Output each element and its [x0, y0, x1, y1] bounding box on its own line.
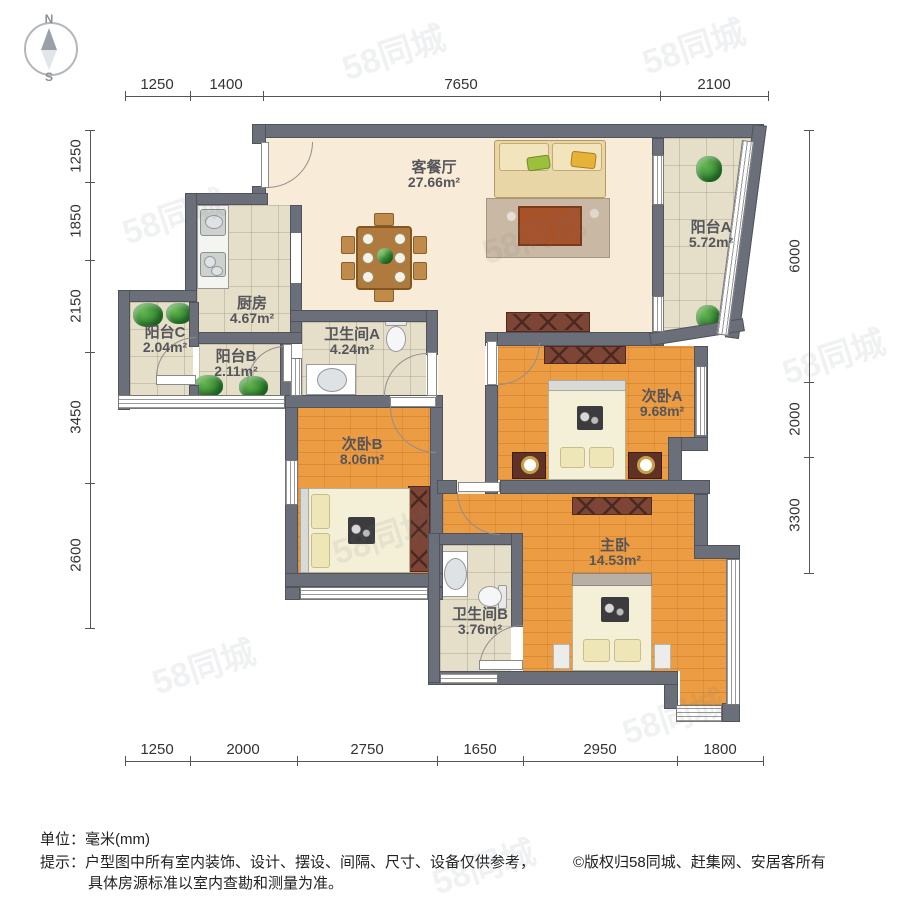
dim-line-left: [90, 130, 91, 628]
sofa-pillow-yellow: [570, 151, 597, 170]
dining-plate: [394, 252, 406, 264]
unit-note: 单位：毫米(mm): [40, 828, 150, 849]
watermark: 58同城: [635, 5, 751, 84]
bedroom-b-pillow: [311, 494, 330, 529]
master-quilt: [614, 639, 641, 662]
dim-bottom: 2000: [226, 741, 259, 758]
dim-left: 2150: [68, 289, 85, 322]
compass-south-label: S: [45, 70, 53, 84]
room-label-master: 主卧 14.53m²: [589, 538, 641, 568]
wall: [118, 290, 130, 410]
bedroom-a-door: [487, 341, 497, 385]
dim-tick: [85, 352, 95, 353]
bathroom-a-basin: [317, 368, 347, 392]
room-area: 8.06m²: [340, 452, 384, 467]
wall: [722, 703, 740, 722]
master-headboard: [572, 573, 652, 586]
bedroom-b-wardrobe: [408, 486, 430, 572]
master-bench: [654, 644, 671, 669]
dim-tick: [763, 756, 764, 766]
dim-line-right: [809, 130, 810, 573]
toilet-b-bowl: [478, 586, 502, 607]
wall: [437, 480, 457, 494]
entry-door: [261, 142, 269, 188]
dim-left: 2600: [68, 538, 85, 571]
room-name: 卫生间A: [324, 327, 380, 342]
dim-left: 1250: [68, 139, 85, 172]
dim-tick: [85, 483, 95, 484]
tip-note-line2: 具体房源标准以室内查勘和测量为准。: [88, 872, 343, 893]
dim-tick: [804, 457, 814, 458]
compass: N S: [16, 12, 82, 84]
wall: [511, 533, 523, 627]
wall: [694, 545, 740, 559]
wall: [185, 193, 268, 205]
dining-plate: [362, 271, 374, 283]
watermark: 58同城: [335, 11, 451, 90]
dim-tick: [768, 91, 769, 101]
copyright-note: ©版权归58同城、赶集网、安居客所有: [573, 851, 826, 872]
dim-top: 7650: [444, 76, 477, 93]
dining-chair: [374, 213, 394, 226]
coffee-table: [518, 206, 582, 246]
wall: [285, 573, 443, 587]
bedroom-b-window: [285, 460, 298, 505]
dim-left: 3450: [68, 400, 85, 433]
compass-needle-north-icon: [41, 28, 57, 50]
wall: [500, 480, 710, 494]
bathroom-b-door: [479, 660, 523, 670]
room-label-balcony-b: 阳台B 2.11m²: [214, 349, 258, 379]
room-area: 9.68m²: [640, 404, 684, 419]
compass-needle-south-icon: [41, 50, 57, 70]
wall: [285, 587, 300, 600]
toilet-a-bowl: [386, 326, 406, 352]
room-area: 2.04m²: [143, 340, 187, 355]
room-area: 3.76m²: [452, 622, 508, 637]
room-name: 客餐厅: [408, 160, 460, 175]
room-label-balcony-c: 阳台C 2.04m²: [143, 325, 187, 355]
room-name: 次卧B: [340, 437, 384, 452]
room-area: 4.67m²: [230, 311, 274, 326]
floorplan-page: N S: [0, 0, 900, 900]
dining-plate: [362, 252, 374, 264]
dim-bottom: 1650: [463, 741, 496, 758]
bedroom-b-blanket-pattern: [348, 517, 375, 544]
master-wardrobe: [572, 497, 652, 515]
dim-top: 1250: [140, 76, 173, 93]
wall: [252, 124, 266, 144]
bathroom-b-basin: [444, 558, 467, 590]
dim-left: 1850: [68, 204, 85, 237]
master-door: [458, 482, 500, 492]
room-name: 次卧A: [640, 389, 684, 404]
dim-bottom: 1800: [703, 741, 736, 758]
dim-bottom: 1250: [140, 741, 173, 758]
master-blanket-pattern: [601, 597, 629, 622]
room-name: 主卧: [589, 538, 641, 553]
dim-right: 3300: [787, 498, 804, 531]
bedroom-b-south-window: [300, 587, 428, 600]
master-south-window: [676, 705, 722, 722]
kitchen-balcony-door: [283, 344, 292, 382]
room-label-bathroom-b: 卫生间B 3.76m²: [452, 607, 508, 637]
balcony-a-window: [652, 296, 664, 332]
balcony-a-plant: [696, 156, 722, 182]
room-area: 27.66m²: [408, 175, 460, 190]
room-name: 卫生间B: [452, 607, 508, 622]
bedroom-a-quilt: [589, 447, 614, 468]
dim-tick: [523, 756, 524, 766]
dim-tick: [804, 130, 814, 131]
dining-chair: [413, 236, 427, 254]
dim-top: 2100: [697, 76, 730, 93]
dim-bottom: 2750: [350, 741, 383, 758]
dining-plant: [377, 248, 393, 264]
tip-note-line1: 提示：户型图中所有室内装饰、设计、摆设、间隔、尺寸、设备仅供参考，: [40, 851, 535, 872]
dim-bottom: 2950: [583, 741, 616, 758]
bedroom-b-pillow: [311, 533, 330, 568]
dim-line-bottom: [125, 761, 763, 762]
dim-tick: [677, 756, 678, 766]
bedroom-a-quilt: [560, 447, 585, 468]
balcony-a-window: [652, 155, 664, 205]
dim-tick: [85, 130, 95, 131]
kitchen-sink-basin: [205, 215, 223, 229]
room-area: 5.72m²: [689, 235, 733, 250]
dining-chair: [341, 236, 355, 254]
bedroom-a-headboard: [548, 380, 626, 391]
wall: [485, 385, 498, 494]
dim-tick: [125, 756, 126, 766]
master-bench: [553, 644, 570, 669]
compass-north-label: N: [45, 12, 54, 26]
dining-chair: [413, 262, 427, 280]
dim-right: 2000: [787, 402, 804, 435]
dining-plate: [394, 233, 406, 245]
dining-plate: [394, 271, 406, 283]
room-area: 4.24m²: [324, 342, 380, 357]
wall: [252, 124, 764, 138]
bathroom-a-door: [427, 352, 437, 396]
room-label-balcony-a: 阳台A 5.72m²: [689, 220, 733, 250]
dining-chair: [374, 289, 394, 302]
bedroom-a-lamp: [637, 456, 655, 474]
dim-tick: [85, 182, 95, 183]
room-label-bedroom-a: 次卧A 9.68m²: [640, 389, 684, 419]
room-label-living: 客餐厅 27.66m²: [408, 160, 460, 190]
tv-cabinet: [506, 312, 590, 332]
dim-tick: [660, 91, 661, 101]
dim-tick: [437, 756, 438, 766]
wall: [185, 193, 197, 302]
wall: [694, 494, 708, 551]
dim-line-top: [125, 96, 768, 97]
room-label-bathroom-a: 卫生间A 4.24m²: [324, 327, 380, 357]
bedroom-a-lamp: [521, 456, 539, 474]
dim-tick: [190, 756, 191, 766]
dim-tick: [85, 628, 95, 629]
room-name: 厨房: [230, 296, 274, 311]
room-label-bedroom-b: 次卧B 8.06m²: [340, 437, 384, 467]
dim-tick: [263, 91, 264, 101]
room-area: 2.11m²: [214, 364, 258, 379]
dim-tick: [85, 260, 95, 261]
dim-tick: [297, 756, 298, 766]
kitchen-burner: [211, 266, 223, 276]
bedroom-a-blanket-pattern: [577, 406, 603, 430]
master-east-window: [726, 559, 740, 705]
master-quilt: [583, 639, 610, 662]
watermark: 58同城: [775, 315, 891, 394]
room-name: 阳台A: [689, 220, 733, 235]
bedroom-a-wardrobe: [544, 346, 626, 364]
room-area: 14.53m²: [589, 553, 641, 568]
watermark: 58同城: [145, 625, 261, 704]
dim-tick: [804, 382, 814, 383]
dim-tick: [125, 91, 126, 101]
dim-top: 1400: [209, 76, 242, 93]
wall: [197, 332, 302, 344]
room-label-kitchen: 厨房 4.67m²: [230, 296, 274, 326]
wall: [290, 310, 438, 322]
dining-plate: [362, 233, 374, 245]
room-name: 阳台B: [214, 349, 258, 364]
balcony-railing: [118, 395, 285, 409]
wall: [428, 533, 440, 683]
kitchen-door-opening: [291, 233, 301, 283]
room-name: 阳台C: [143, 325, 187, 340]
wall: [428, 533, 523, 545]
wall: [426, 310, 438, 355]
dim-tick: [804, 573, 814, 574]
bathroom-b-window: [440, 673, 498, 684]
dim-tick: [190, 91, 191, 101]
balcony-c-door: [156, 375, 196, 385]
dim-right: 6000: [787, 239, 804, 272]
bedroom-b-headboard: [300, 488, 309, 573]
bedroom-a-window: [695, 366, 707, 436]
bedroom-b-door: [390, 397, 436, 407]
dining-chair: [341, 262, 355, 280]
